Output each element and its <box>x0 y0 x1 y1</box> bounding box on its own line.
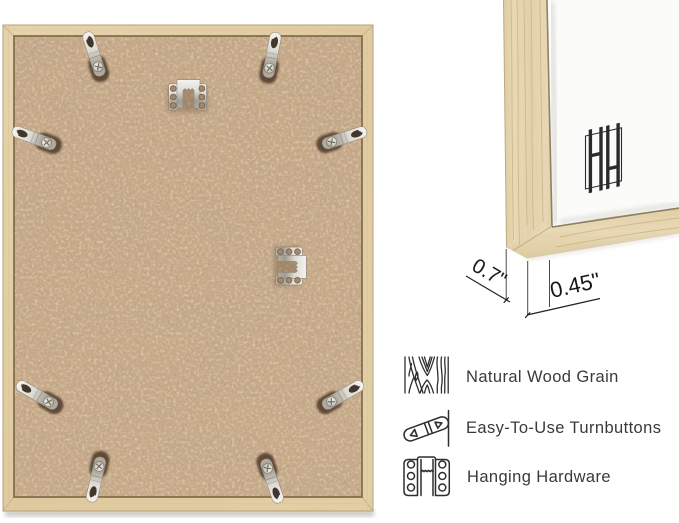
svg-text:0.45": 0.45" <box>548 268 603 303</box>
svg-text:Hanging Hardware: Hanging Hardware <box>467 468 611 486</box>
svg-text:0.7": 0.7" <box>468 254 511 292</box>
svg-text:Natural Wood Grain: Natural Wood Grain <box>466 368 619 386</box>
svg-text:Easy-To-Use Turnbuttons: Easy-To-Use Turnbuttons <box>466 419 661 437</box>
